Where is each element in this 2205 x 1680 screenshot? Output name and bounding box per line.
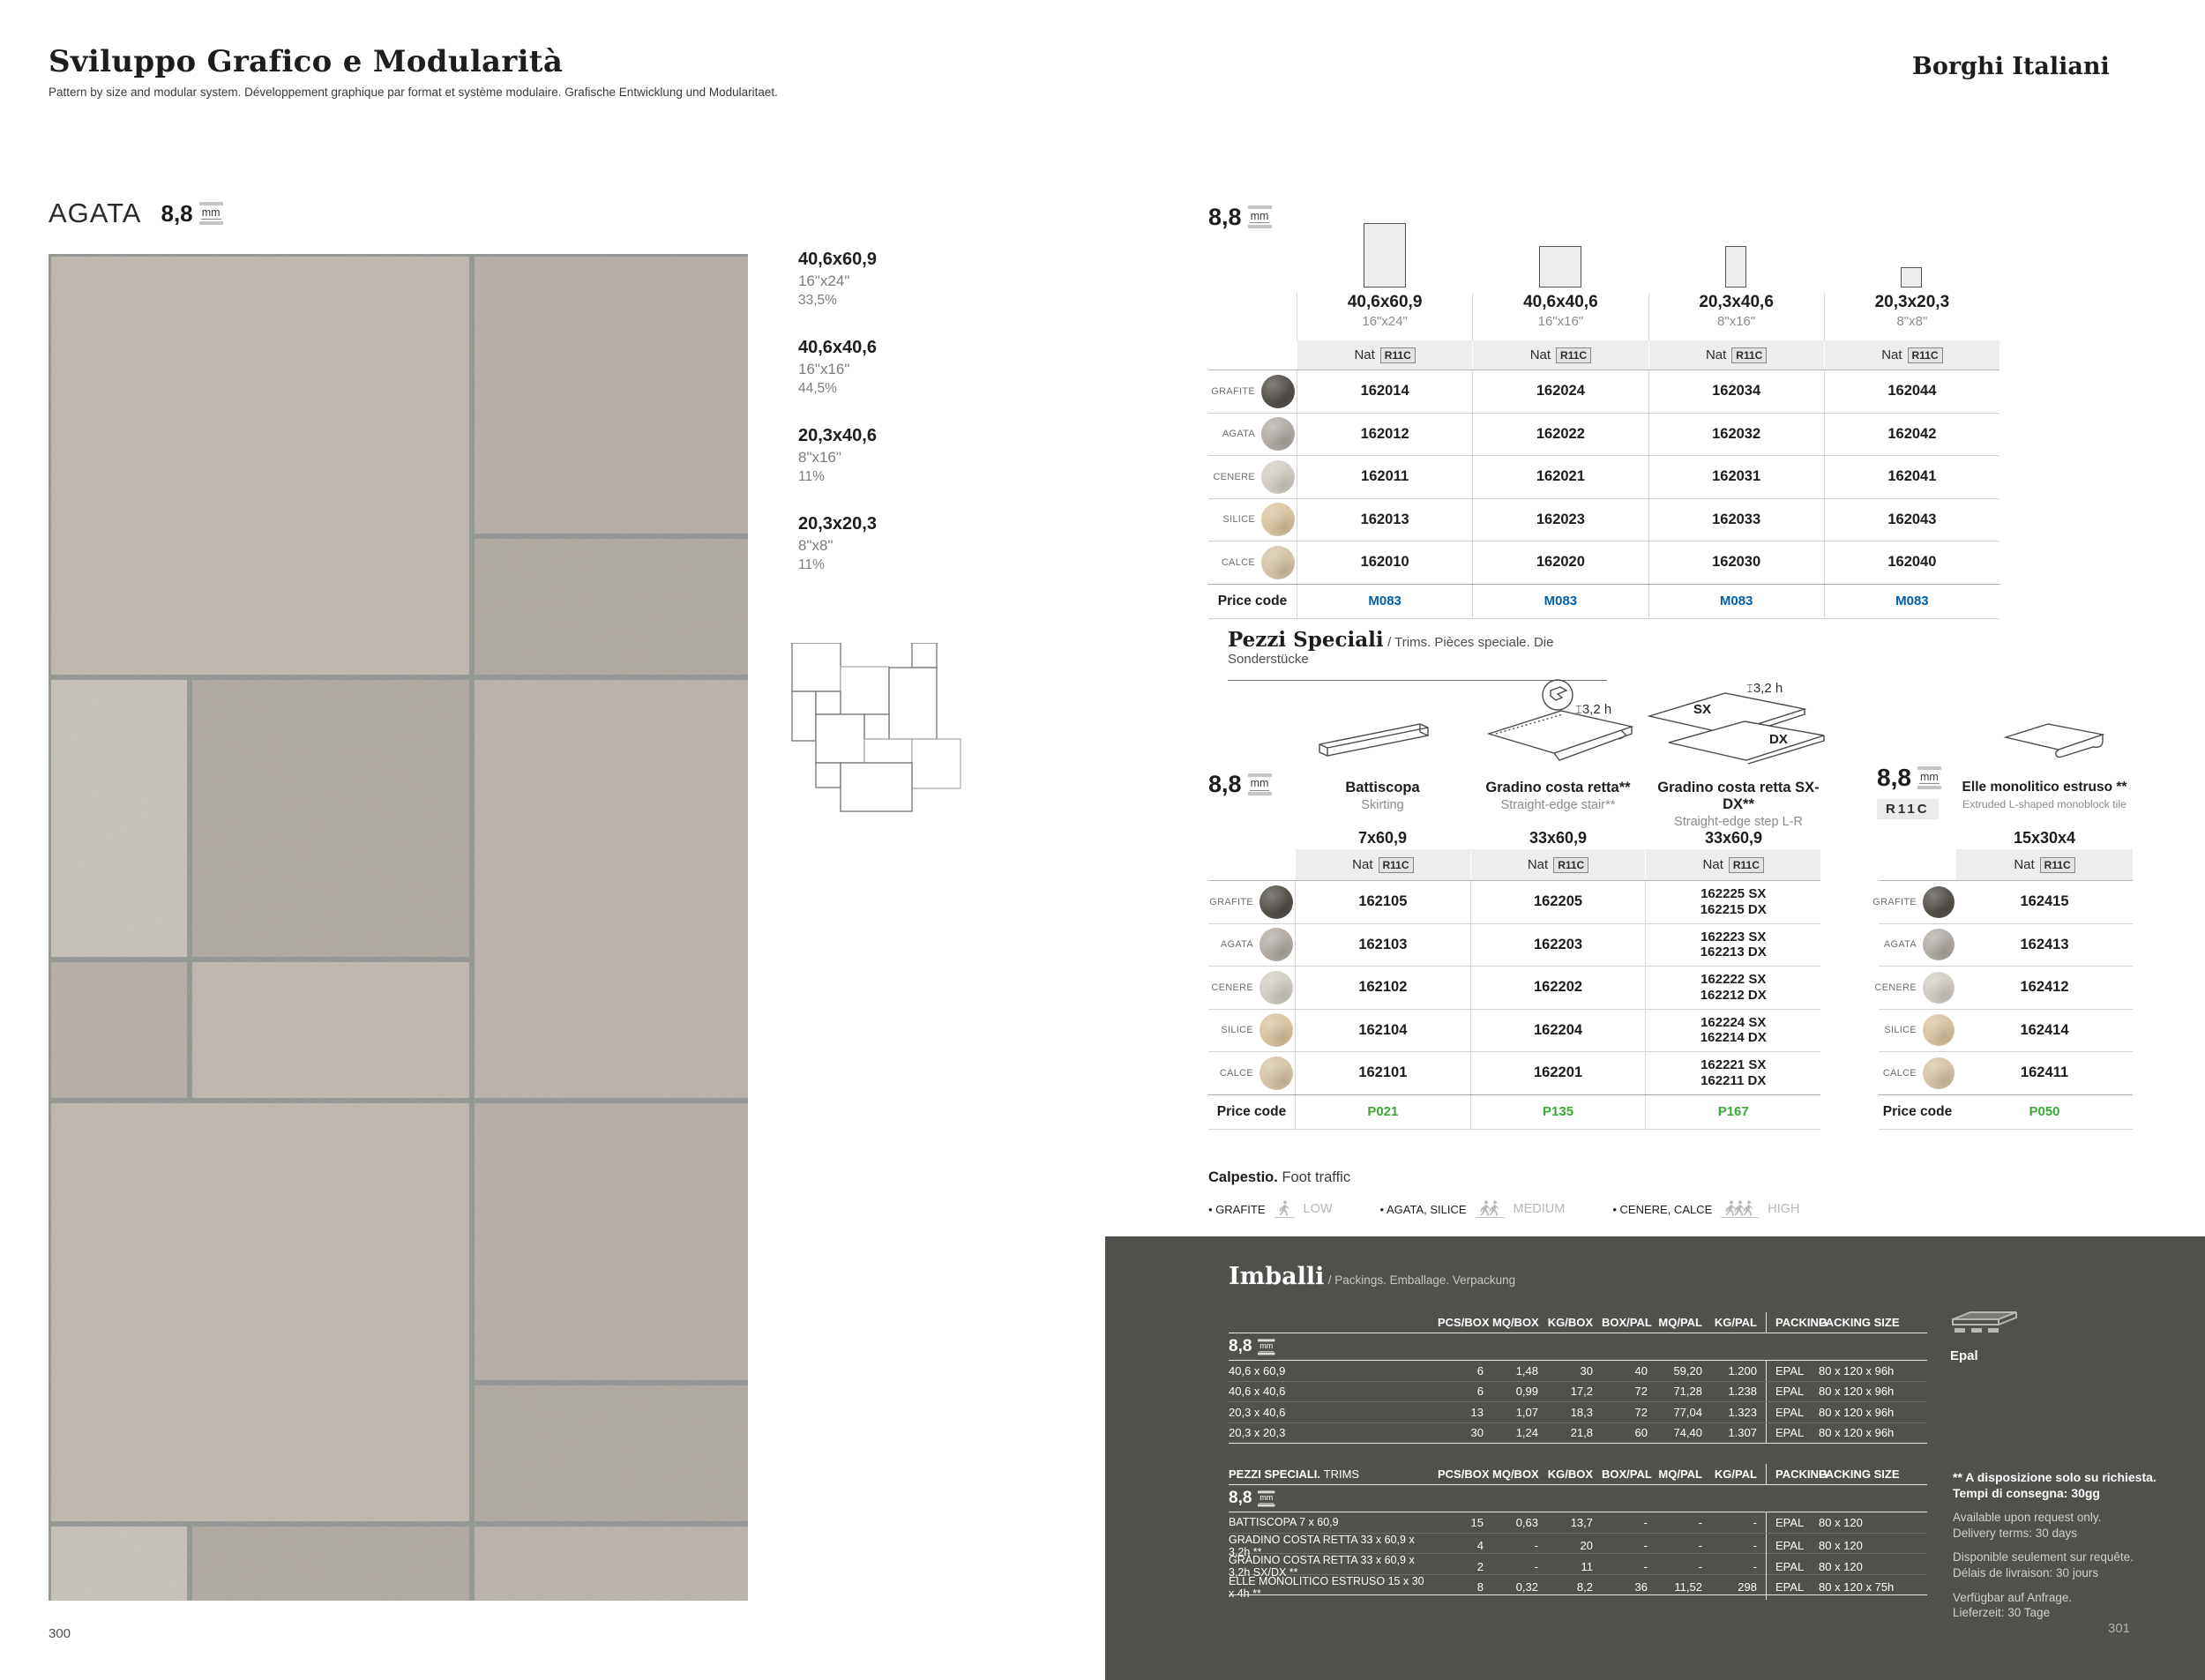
elle-size: 15x30x4 (1956, 829, 2133, 847)
sx-label: SX (1693, 702, 1711, 717)
swatch-silice (1261, 503, 1295, 536)
main-product-table: 8,8 mm 40,6x60,916"x24" 40,6x40,616"x16"… (1208, 141, 1999, 619)
article-code: 162223 SX162213 DX (1645, 924, 1820, 967)
price-code-row: Price code P021 P135 P167 (1208, 1094, 1820, 1130)
modular-pattern-diagram (791, 643, 963, 819)
packing-table-trims: PEZZI SPECIALI. TRIMS PCS/BOX MQ/BOX KG/… (1229, 1464, 1927, 1595)
price-code-row: Price code P050 (1879, 1094, 2133, 1130)
price-code: P135 (1470, 1095, 1646, 1129)
article-code: 162043 (1824, 499, 1999, 541)
article-code: 162104 (1295, 1010, 1470, 1052)
column-header: 40,6x40,616"x16" (1472, 293, 1648, 340)
table-thickness: 8,8 mm (1208, 141, 1297, 293)
finish-band: NatR11C (1645, 849, 1820, 880)
article-code: 162042 (1824, 414, 1999, 456)
swatch-cenere (1261, 460, 1295, 494)
elle-tile-icon (2000, 716, 2110, 768)
trims-thickness: 8,8 mm (1208, 771, 1272, 798)
packing-panel: Imballi / Packings. Emballage. Verpackun… (1105, 1236, 2205, 1680)
article-code: 162222 SX162212 DX (1645, 967, 1820, 1009)
walkers-icon (1721, 1200, 1759, 1218)
trim-column-header: BattiscopaSkirting (1295, 780, 1470, 812)
article-code: 162041 (1824, 456, 1999, 498)
swatch-silice (1923, 1014, 1955, 1046)
step-height-note: ⌶3,2 h (1746, 681, 1783, 697)
elle-table: NatR11C GRAFITE 162415 AGATA 162413 CENE… (1879, 849, 2133, 1130)
price-code: P021 (1295, 1095, 1470, 1129)
walkers-icon (1476, 1200, 1505, 1218)
step-height-note: ⌶3,2 h (1575, 702, 1611, 718)
brand-logo: Borghi Italiani (1912, 53, 2110, 80)
trim-size: 33x60,9 (1646, 829, 1821, 847)
article-code: 162105 (1295, 881, 1470, 923)
color-row-cenere: CENERE 162102 162202 162222 SX162212 DX (1208, 967, 1820, 1010)
slip-rating-badge: R11C (1380, 347, 1416, 363)
trim-size: 7x60,9 (1295, 829, 1470, 847)
slip-rating-badge: R11C (1908, 347, 1943, 363)
finish-band: NatR11C (1472, 340, 1648, 370)
trim-column-header: Gradino costa retta SX-DX**Straight-edge… (1646, 780, 1831, 829)
slip-rating-badge: R11C (2040, 857, 2075, 873)
article-code: 162014 (1297, 370, 1472, 413)
tile-pattern-svg (49, 254, 748, 1601)
swatch-calce (1923, 1057, 1955, 1089)
elle-thickness: 8,8 mm R11C (1877, 764, 1941, 819)
packing-row: 20,3 x 40,6 131,0718,3 7277,041.323 EPAL… (1229, 1402, 1927, 1423)
color-row-agata: AGATA 162413 (1879, 924, 2133, 967)
packing-row: 40,6 x 60,9 61,4830 4059,201.200 EPAL80 … (1229, 1361, 1927, 1382)
packing-row: 40,6 x 40,6 60,9917,2 7271,281.238 EPAL8… (1229, 1382, 1927, 1403)
battiscopa-icon (1307, 713, 1457, 772)
article-code: 162203 (1470, 924, 1646, 967)
price-code: M083 (1648, 585, 1824, 618)
article-code: 162032 (1648, 414, 1824, 456)
tile-shape-40x40-icon (1472, 141, 1648, 293)
color-row-calce: CALCE 162411 (1879, 1052, 2133, 1095)
article-code: 162204 (1470, 1010, 1646, 1052)
thickness-mm-icon: mm (1258, 1338, 1274, 1356)
tile-pattern-photo (49, 254, 748, 1601)
article-code: 162205 (1470, 881, 1646, 923)
swatch-grafite (1259, 885, 1293, 919)
article-code: 162044 (1824, 370, 1999, 413)
thickness-badge: 8,8 mm (161, 200, 222, 228)
color-row-silice: SILICE 162414 (1879, 1010, 2133, 1053)
price-code: P167 (1645, 1095, 1820, 1129)
finish-band: NatR11C (1956, 849, 2133, 880)
article-code: 162011 (1297, 456, 1472, 498)
foot-traffic-high: CENERE, CALCE HIGH (1612, 1200, 1799, 1218)
article-code: 162013 (1297, 499, 1472, 541)
article-code: 162031 (1648, 456, 1824, 498)
packing-thickness: 8,8 mm (1229, 1333, 1927, 1361)
article-code: 162022 (1472, 414, 1648, 456)
swatch-calce (1259, 1057, 1293, 1090)
article-code: 162414 (1956, 1010, 2133, 1052)
finish-band: NatR11C (1648, 340, 1824, 370)
color-row-calce: CALCE 162010 162020 162030 162040 (1208, 541, 1999, 585)
packing-row: 20,3 x 20,3 301,2421,8 6074,401.307 EPAL… (1229, 1423, 1927, 1445)
article-code: 162103 (1295, 924, 1470, 967)
size-item: 40,6x60,9 16"x24" 33,5% (798, 250, 877, 309)
packing-row: BATTISCOPA 7 x 60,9 150,6313,7 --- EPAL8… (1229, 1512, 1927, 1534)
size-item: 40,6x40,6 16"x16" 44,5% (798, 338, 877, 397)
slip-rating-badge: R11C (1729, 857, 1764, 873)
article-code: 162202 (1470, 967, 1646, 1009)
finish-band: NatR11C (1470, 849, 1646, 880)
swatch-agata (1259, 928, 1293, 961)
color-row-grafite: GRAFITE 162105 162205 162225 SX162215 DX (1208, 881, 1820, 924)
color-row-cenere: CENERE 162011 162021 162031 162041 (1208, 456, 1999, 499)
trims-table: NatR11C NatR11C NatR11C GRAFITE 162105 1… (1208, 849, 1820, 1130)
swatch-cenere (1259, 971, 1293, 1004)
finish-band: NatR11C (1297, 340, 1472, 370)
price-code: P050 (1956, 1095, 2133, 1129)
packing-row: GRADINO COSTA RETTA 33 x 60,9 x 3,2h SX/… (1229, 1554, 1927, 1575)
tile-shape-40x60-icon (1297, 141, 1472, 293)
article-code: 162221 SX162211 DX (1645, 1052, 1820, 1094)
page-number-left: 300 (49, 1626, 71, 1641)
color-row-grafite: GRAFITE 162415 (1879, 881, 2133, 924)
series-name: AGATA (49, 198, 141, 229)
price-code: M083 (1472, 585, 1648, 618)
size-item: 20,3x20,3 8"x8" 11% (798, 514, 877, 573)
article-code: 162224 SX162214 DX (1645, 1010, 1820, 1052)
article-code: 162412 (1956, 967, 2133, 1009)
trim-column-header: Gradino costa retta**Straight-edge stair… (1470, 780, 1646, 812)
article-code: 162020 (1472, 541, 1648, 584)
thickness-mm-icon: mm (1258, 1490, 1274, 1508)
color-row-silice: SILICE 162104 162204 162224 SX162214 DX (1208, 1010, 1820, 1053)
thickness-mm-icon: mm (1248, 205, 1272, 230)
page-subtitle: Pattern by size and modular system. Déve… (49, 86, 778, 99)
packing-row: ELLE MONOLITICO ESTRUSO 15 x 30 x 4h ** … (1229, 1575, 1927, 1596)
tile-shape-20x40-icon (1648, 141, 1824, 293)
sizes-list: 40,6x60,9 16"x24" 33,5% 40,6x40,6 16"x16… (798, 250, 877, 602)
thickness-mm-icon: mm (1248, 772, 1272, 797)
article-code: 162012 (1297, 414, 1472, 456)
column-header: 40,6x60,916"x24" (1297, 293, 1472, 340)
pallet-icon (1950, 1307, 2021, 1335)
color-row-calce: CALCE 162101 162201 162221 SX162211 DX (1208, 1052, 1820, 1095)
trim-size: 33x60,9 (1470, 829, 1646, 847)
swatch-grafite (1261, 375, 1295, 408)
page-title: Sviluppo Grafico e Modularità (49, 44, 563, 79)
thickness-mm-icon: mm (1917, 765, 1941, 791)
column-header: 20,3x40,68"x16" (1648, 293, 1824, 340)
article-code: 162415 (1956, 881, 2133, 923)
article-code: 162023 (1472, 499, 1648, 541)
finish-band: NatR11C (1824, 340, 1999, 370)
thickness-mm-icon: mm (199, 201, 223, 227)
foot-traffic-medium: AGATA, SILICE MEDIUM (1380, 1200, 1566, 1218)
swatch-cenere (1923, 972, 1955, 1004)
size-item: 20,3x40,6 8"x16" 11% (798, 426, 877, 485)
packing-row: GRADINO COSTA RETTA 33 x 60,9 x 3,2h ** … (1229, 1534, 1927, 1555)
swatch-grafite (1923, 886, 1955, 918)
walker-icon (1274, 1200, 1295, 1218)
article-code: 162024 (1472, 370, 1648, 413)
color-row-agata: AGATA 162103 162203 162223 SX162213 DX (1208, 924, 1820, 967)
packing-title: Imballi / Packings. Emballage. Verpackun… (1229, 1263, 1515, 1290)
article-code: 162411 (1956, 1052, 2133, 1094)
article-code: 162201 (1470, 1052, 1646, 1094)
article-code: 162030 (1648, 541, 1824, 584)
slip-rating-badge: R11C (1553, 857, 1588, 873)
elle-column-header: Elle monolitico estruso **Extruded L-sha… (1956, 780, 2133, 810)
article-code: 162033 (1648, 499, 1824, 541)
color-row-silice: SILICE 162013 162023 162033 162043 (1208, 499, 1999, 542)
column-header: 20,3x20,38"x8" (1824, 293, 1999, 340)
article-code: 162102 (1295, 967, 1470, 1009)
article-code: 162413 (1956, 924, 2133, 967)
article-code: 162225 SX162215 DX (1645, 881, 1820, 923)
slip-rating-badge: R11C (1379, 857, 1414, 873)
tile-shape-20x20-icon (1824, 141, 1999, 293)
dx-label: DX (1769, 732, 1788, 747)
article-code: 162040 (1824, 541, 1999, 584)
slip-rating-badge: R11C (1877, 799, 1939, 819)
color-row-cenere: CENERE 162412 (1879, 967, 2133, 1010)
catalog-page: { "page": { "title": "Sviluppo Grafico e… (0, 0, 2205, 1680)
trims-section-title: Pezzi Speciali / Trims. Pièces speciale.… (1228, 628, 1607, 681)
slip-rating-badge: R11C (1731, 347, 1767, 363)
swatch-silice (1259, 1013, 1293, 1047)
article-code: 162101 (1295, 1052, 1470, 1094)
article-code: 162010 (1297, 541, 1472, 584)
foot-traffic-low: GRAFITE LOW (1208, 1200, 1333, 1218)
price-code: M083 (1824, 585, 1999, 618)
availability-note: ** A disposizione solo su richiesta.Temp… (1953, 1469, 2201, 1621)
price-code: M083 (1297, 585, 1472, 618)
color-row-grafite: GRAFITE 162014 162024 162034 162044 (1208, 370, 1999, 414)
epal-block: Epal (1950, 1307, 2021, 1363)
foot-traffic-section: Calpestio. Foot traffic GRAFITE LOW AGAT… (1208, 1169, 1800, 1218)
price-code-row: Price code M083 M083 M083 M083 (1208, 584, 1999, 619)
finish-band: NatR11C (1295, 849, 1470, 880)
foot-traffic-title: Calpestio. Foot traffic (1208, 1169, 1800, 1186)
swatch-calce (1261, 546, 1295, 579)
gradino-icon: ⌶3,2 h (1480, 677, 1643, 780)
gradino-sx-dx-icon: SX DX ⌶3,2 h (1642, 681, 1828, 784)
packing-table-sizes: PCS/BOX MQ/BOX KG/BOX BOX/PAL MQ/PAL KG/… (1229, 1312, 1927, 1444)
page-number-right: 301 (2108, 1621, 2130, 1636)
article-code: 162021 (1472, 456, 1648, 498)
swatch-agata (1261, 417, 1295, 451)
swatch-agata (1923, 929, 1955, 960)
slip-rating-badge: R11C (1556, 347, 1591, 363)
color-row-agata: AGATA 162012 162022 162032 162042 (1208, 414, 1999, 457)
packing-thickness: 8,8 mm (1229, 1485, 1927, 1512)
series-heading: AGATA 8,8 mm (49, 198, 223, 229)
article-code: 162034 (1648, 370, 1824, 413)
